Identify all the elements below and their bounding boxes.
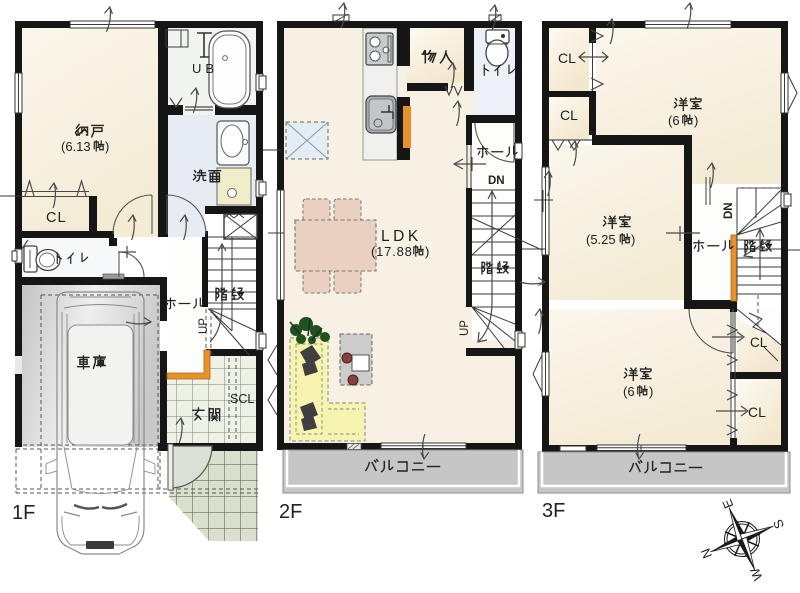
svg-text:CL: CL <box>558 50 576 66</box>
svg-text:): ) <box>105 139 109 154</box>
svg-text:CL: CL <box>46 210 67 226</box>
svg-text:(17.88: (17.88 <box>371 244 413 259</box>
svg-text:CL: CL <box>750 335 768 350</box>
svg-text:(5.25: (5.25 <box>586 232 616 247</box>
svg-text:): ) <box>631 232 635 247</box>
svg-text:UB: UB <box>192 61 218 76</box>
svg-text:): ) <box>425 244 429 259</box>
svg-text:UP: UP <box>198 318 210 334</box>
svg-text:DN: DN <box>723 202 735 219</box>
svg-text:(6: (6 <box>623 384 635 399</box>
svg-text:CL: CL <box>560 107 578 123</box>
svg-text:3F: 3F <box>542 500 565 522</box>
svg-text:1F: 1F <box>12 502 35 524</box>
svg-text:2F: 2F <box>279 501 302 523</box>
svg-text:): ) <box>649 384 653 399</box>
svg-text:UP: UP <box>459 320 471 336</box>
svg-text:CL: CL <box>748 404 766 420</box>
svg-text:): ) <box>694 113 698 128</box>
svg-text:SCL: SCL <box>230 392 254 406</box>
svg-text:LDK: LDK <box>381 228 422 245</box>
svg-text:DN: DN <box>488 175 505 187</box>
svg-text:(6.13: (6.13 <box>61 139 91 154</box>
svg-text:(6: (6 <box>668 113 680 128</box>
